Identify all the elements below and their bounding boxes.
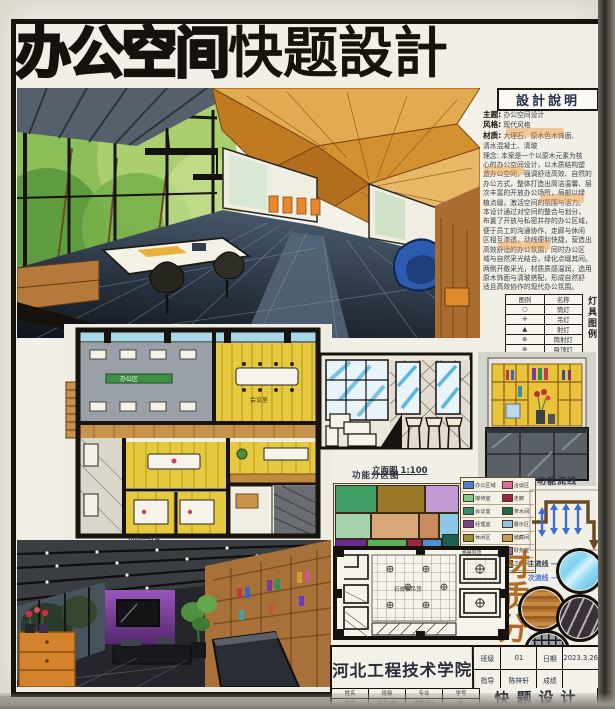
legend-swatch — [463, 481, 474, 489]
legend-item: 接待室 — [462, 492, 501, 505]
legend-label: 会议室 — [475, 508, 491, 515]
legend-name: 吊灯 — [544, 315, 583, 325]
field-label: 材质: — [483, 131, 501, 140]
recessed-spot-icon: ⊕ — [506, 335, 545, 345]
marble-material-swatch — [556, 594, 604, 642]
legend-swatch — [463, 534, 474, 542]
legend-name: 射灯 — [544, 325, 583, 335]
title-brush-part: 快题設計 — [228, 22, 448, 85]
class-value: 01 — [500, 647, 536, 669]
photo-edge-bottom — [0, 693, 615, 709]
plan-office-label: 办公区 — [120, 375, 138, 383]
field-value: 办公空间设计 — [503, 111, 544, 119]
notes-line: 域与自然采光结合，绿化点缀其间。 — [483, 255, 596, 264]
legend-name: 筒灯 — [544, 305, 583, 315]
photo-edge-right — [598, 0, 615, 709]
legend-col-symbol: 图例 — [506, 295, 545, 305]
legend-swatch — [502, 520, 513, 528]
floor-plan-drawing: 办公区 会议室 — [64, 324, 332, 544]
zone-block — [425, 485, 459, 513]
downlight-icon: ○ — [506, 305, 545, 315]
legend-label: 接待室 — [475, 495, 491, 502]
legend-swatch — [502, 507, 513, 515]
main-flow-text: 主流线 — [528, 560, 548, 568]
notes-line: 便于员工的沟通协作，走廊与休闲 — [483, 227, 596, 236]
glass-material-swatch — [556, 548, 604, 594]
lighting-legend-side-label: 灯具图例 — [585, 296, 598, 354]
legend-swatch — [502, 534, 513, 542]
design-poster: 办公空间快题設計 — [0, 0, 615, 709]
legend-item: 休闲区 — [462, 532, 501, 545]
notes-line: 适且高效协作的现代办公氛围。 — [483, 283, 596, 292]
field-value: 清水混凝土、清玻 — [483, 142, 537, 150]
legend-label: 休闲区 — [475, 534, 491, 541]
school-name: 河北工程技术学院 — [332, 646, 475, 690]
legend-label: 洽谈区 — [514, 482, 530, 489]
date-value: 2023.3.26 — [562, 647, 598, 669]
zone-block — [419, 513, 439, 539]
legend-label: 走廊 — [514, 495, 524, 502]
legend-label: 茶水间 — [514, 508, 530, 515]
date-label: 日期 — [536, 647, 562, 669]
highlight-mark — [540, 194, 584, 203]
main-perspective-drawing — [17, 88, 480, 338]
zoning-title-text: 功能分区图 — [352, 471, 400, 481]
elevation-drawing-1 — [318, 352, 474, 462]
elevation-drawing-2 — [478, 352, 596, 486]
legend-swatch — [463, 520, 474, 528]
circulation-title: 功能流线 — [537, 474, 577, 487]
poster-title: 办公空间快题設計 — [16, 22, 594, 86]
design-notes-header: 設計說明 — [497, 88, 599, 111]
lobby-perspective-drawing — [17, 540, 331, 687]
elevation-scale: 1:100 — [400, 466, 427, 476]
legend-item: 办公区域 — [462, 479, 501, 492]
notes-line: 理念: 本案是一个以原木元素为核 — [483, 152, 596, 161]
pendant-icon: ✛ — [506, 315, 545, 325]
legend-label: 展示区 — [514, 521, 530, 528]
title-solid-part: 办公空间 — [16, 22, 228, 85]
zone-block — [335, 513, 371, 539]
notes-line: 布置了开放与私密并存的办公区域， — [483, 217, 596, 226]
secondary-flow-text: 次流线 — [528, 574, 548, 582]
legend-label: 办公区域 — [475, 482, 496, 489]
spotlight-icon: ▲ — [506, 325, 545, 335]
class-label: 班级 — [474, 647, 500, 669]
field-label: 风格: — [483, 120, 501, 129]
legend-item: 经理室 — [462, 518, 501, 531]
field-label: 主题: — [483, 110, 501, 119]
circulation-title-text: 功能流线 — [537, 477, 577, 487]
highlight-mark — [498, 241, 550, 250]
notes-line: 办公方式，整体打造出简洁温馨、层 — [483, 180, 596, 189]
legend-label: 经理室 — [475, 521, 491, 528]
legend-swatch — [463, 494, 474, 502]
legend-label: 储藏间 — [514, 534, 530, 541]
highlight-mark — [484, 166, 524, 175]
legend-swatch — [463, 507, 474, 515]
legend-name: 筒射灯 — [544, 335, 583, 345]
legend-swatch — [502, 494, 513, 502]
ceiling-note-center: 石膏板吊顶 — [394, 585, 422, 593]
legend-swatch — [502, 481, 513, 489]
zone-block — [371, 513, 419, 539]
zone-block — [335, 485, 377, 513]
zoning-title: 功能分区图 — [352, 469, 400, 481]
notes-line: 两侧开敞采光，材质质感温润，选用 — [483, 265, 596, 274]
legend-item: 会议室 — [462, 505, 501, 518]
plan-meeting-label: 会议室 — [250, 396, 268, 404]
zone-block — [377, 485, 425, 513]
design-notes-title: 設計說明 — [516, 90, 580, 109]
legend-col-name: 名称 — [544, 295, 583, 305]
notes-line: 原木饰面与清玻搭配，形成自然舒 — [483, 274, 596, 283]
highlight-mark — [506, 128, 564, 137]
title-block: 河北工程技术学院 班级 01 日期 2023.3.26 指导 陈梓轩 成绩 — [330, 645, 600, 692]
ceiling-note-corner: 格栅吊顶 — [462, 549, 481, 556]
ceiling-plan-drawing: 石膏板吊顶 格栅吊顶 — [332, 545, 510, 643]
